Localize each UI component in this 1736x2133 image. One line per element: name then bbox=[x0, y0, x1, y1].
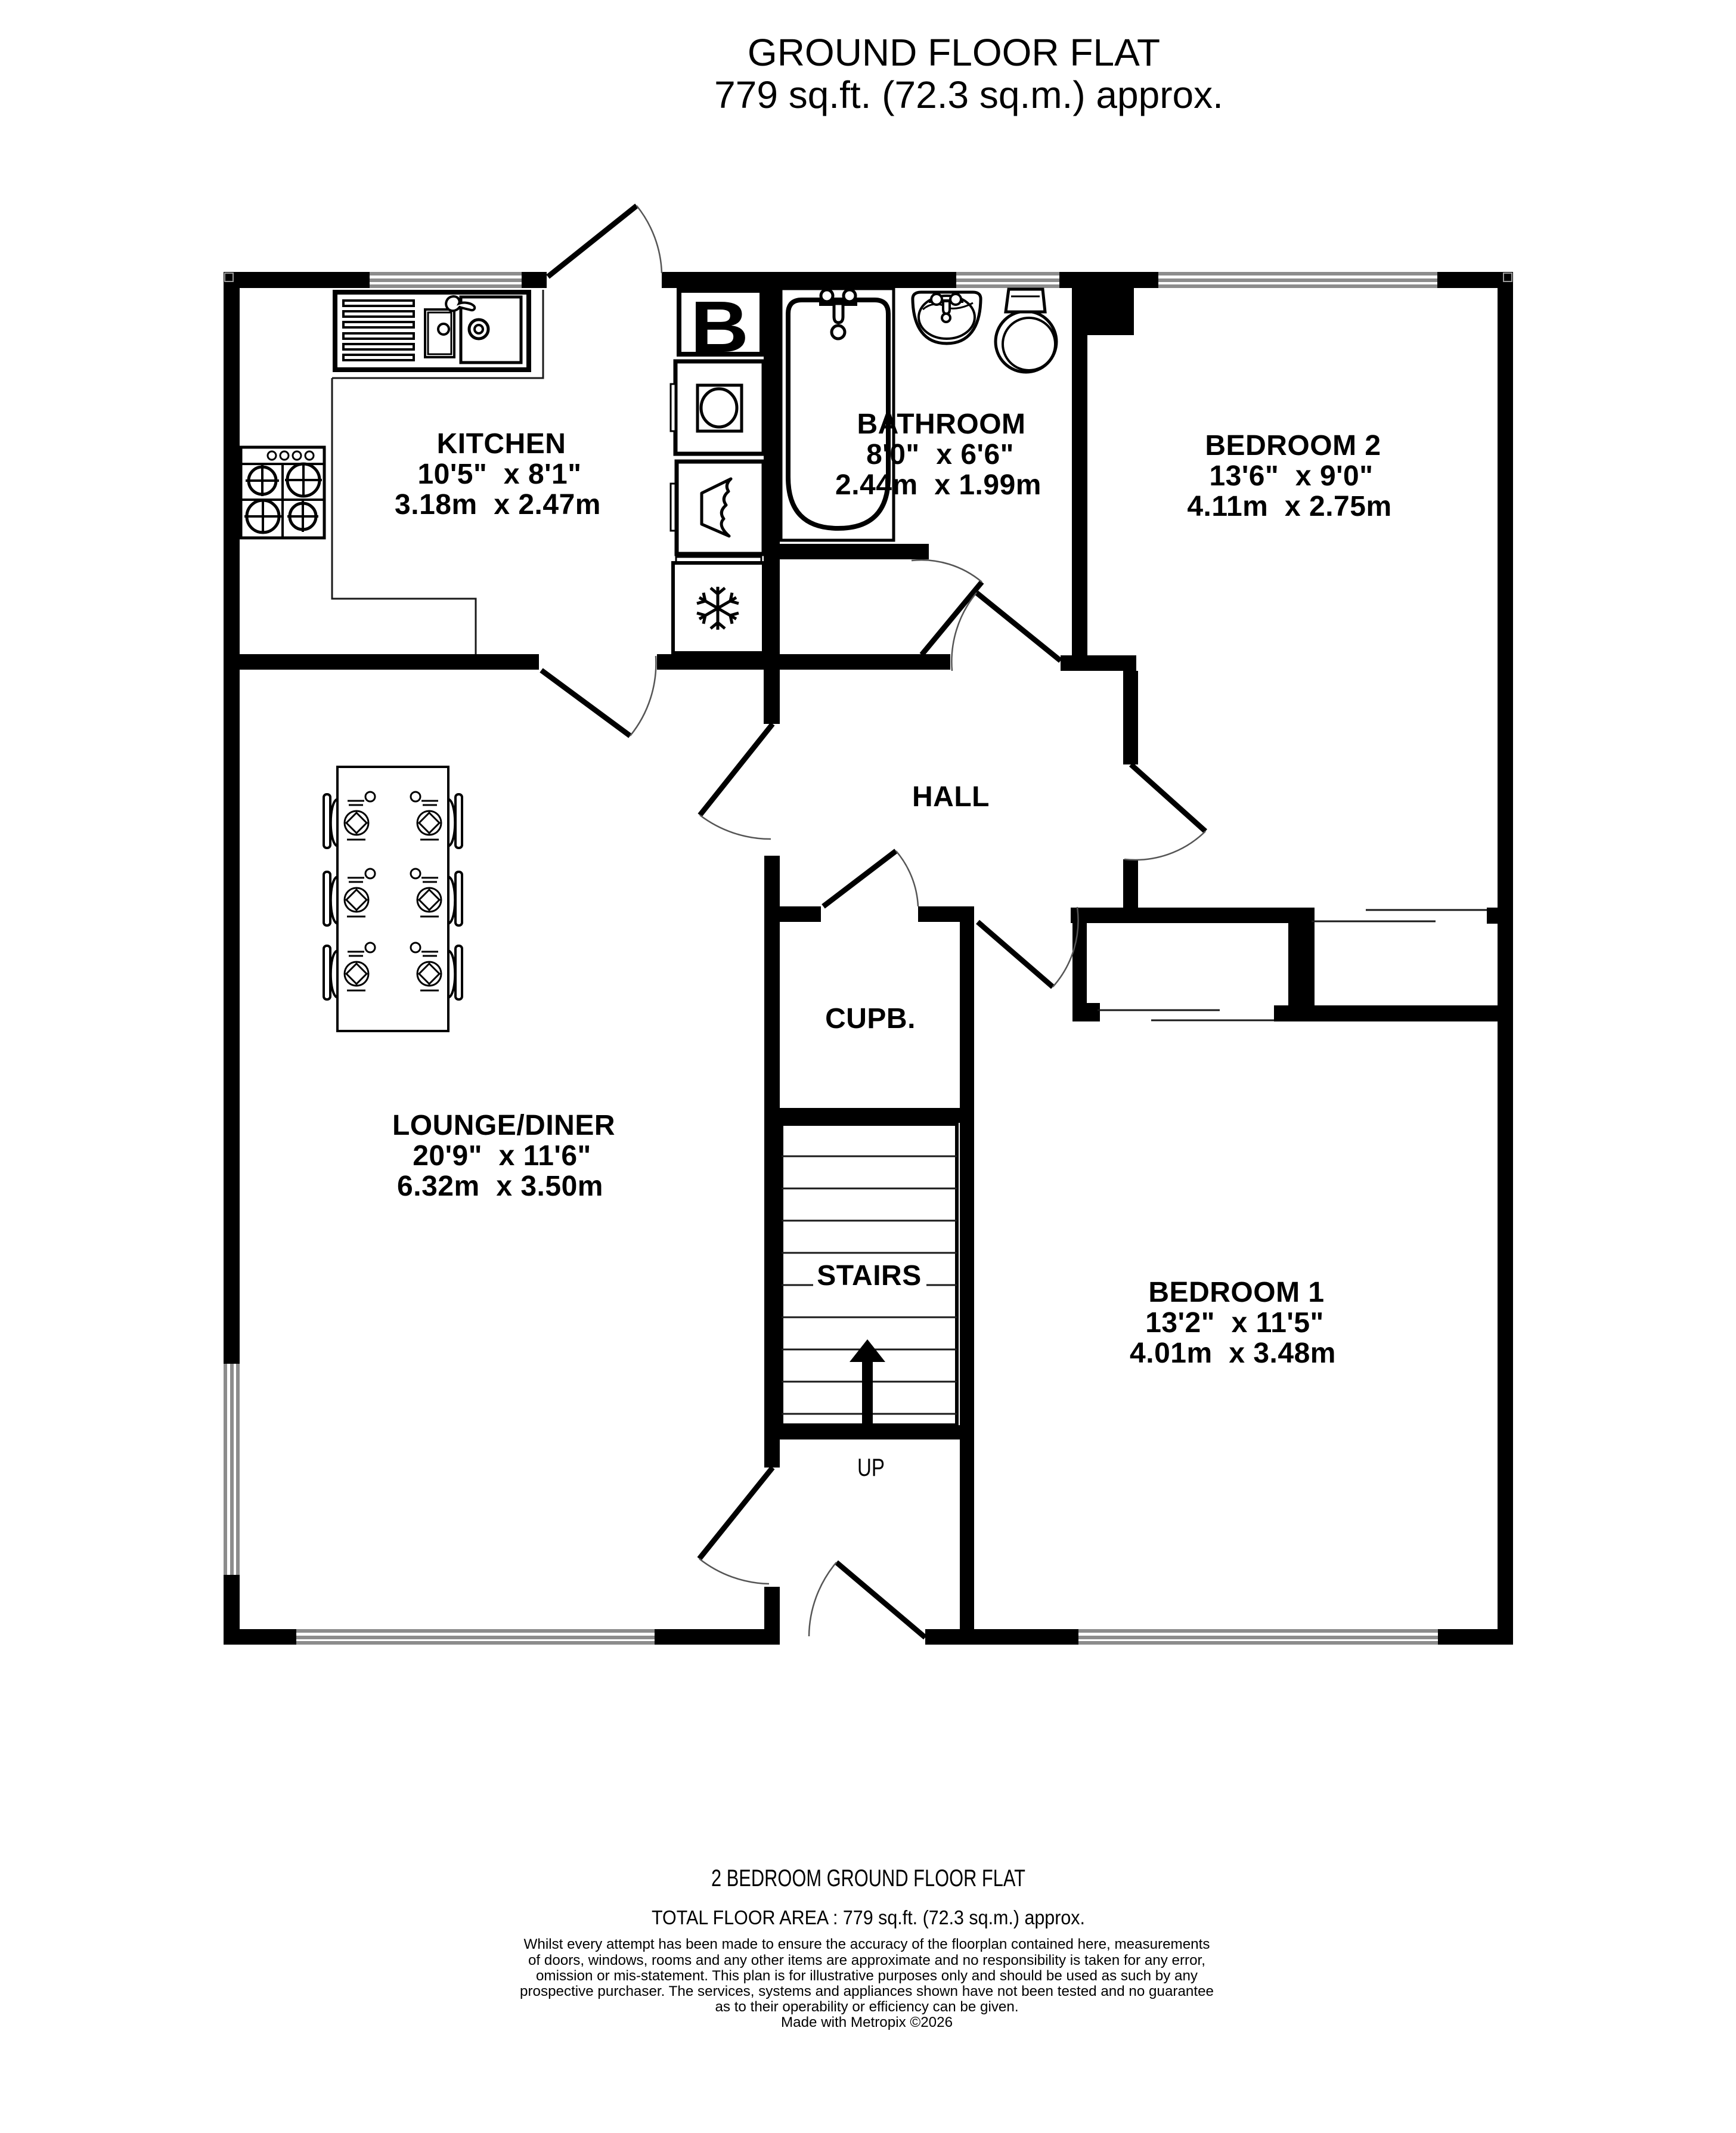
svg-text:Whilst every attempt has been: Whilst every attempt has been made to en… bbox=[524, 1936, 1210, 1952]
svg-text:as to their operability or eff: as to their operability or efficiency ca… bbox=[715, 1999, 1018, 2015]
svg-text:13'6" x 9'0": 13'6" x 9'0" bbox=[1209, 460, 1373, 492]
svg-text:20'9" x 11'6": 20'9" x 11'6" bbox=[413, 1140, 591, 1172]
svg-text:HALL: HALL bbox=[912, 781, 990, 813]
svg-text:BATHROOM: BATHROOM bbox=[857, 408, 1025, 440]
svg-text:STAIRS: STAIRS bbox=[817, 1260, 921, 1292]
svg-text:prospective purchaser. The ser: prospective purchaser. The services, sys… bbox=[520, 1983, 1214, 1999]
svg-text:4.11m x 2.75m: 4.11m x 2.75m bbox=[1187, 491, 1391, 522]
svg-text:UP: UP bbox=[857, 1453, 885, 1481]
svg-text:TOTAL FLOOR AREA : 779 sq.ft.: TOTAL FLOOR AREA : 779 sq.ft. (72.3 sq.m… bbox=[652, 1906, 1085, 1928]
svg-text:LOUNGE/DINER: LOUNGE/DINER bbox=[392, 1110, 615, 1141]
svg-text:GROUND FLOOR FLAT: GROUND FLOOR FLAT bbox=[748, 31, 1160, 74]
svg-text:CUPB.: CUPB. bbox=[825, 1003, 916, 1035]
svg-text:13'2" x 11'5": 13'2" x 11'5" bbox=[1145, 1307, 1324, 1339]
svg-text:Made with Metropix ©2026: Made with Metropix ©2026 bbox=[781, 2014, 953, 2030]
svg-text:2.44m x 1.99m: 2.44m x 1.99m bbox=[835, 469, 1041, 501]
svg-text:2 BEDROOM GROUND FLOOR FLAT: 2 BEDROOM GROUND FLOOR FLAT bbox=[711, 1865, 1025, 1891]
svg-text:10'5" x 8'1": 10'5" x 8'1" bbox=[417, 459, 581, 490]
svg-text:4.01m x 3.48m: 4.01m x 3.48m bbox=[1130, 1338, 1336, 1369]
svg-text:779 sq.ft. (72.3 sq.m.) approx: 779 sq.ft. (72.3 sq.m.) approx. bbox=[714, 73, 1223, 116]
svg-text:B: B bbox=[690, 286, 749, 367]
svg-text:3.18m x 2.47m: 3.18m x 2.47m bbox=[395, 489, 601, 521]
svg-text:8'0" x 6'6": 8'0" x 6'6" bbox=[866, 439, 1014, 470]
svg-text:omission or mis-statement. Thi: omission or mis-statement. This plan is … bbox=[536, 1968, 1198, 1984]
svg-text:BEDROOM 2: BEDROOM 2 bbox=[1205, 430, 1381, 462]
svg-text:6.32m x 3.50m: 6.32m x 3.50m bbox=[397, 1171, 603, 1202]
svg-text:of doors, windows, rooms and a: of doors, windows, rooms and any other i… bbox=[528, 1952, 1205, 1968]
svg-text:BEDROOM 1: BEDROOM 1 bbox=[1148, 1277, 1324, 1308]
svg-text:KITCHEN: KITCHEN bbox=[437, 428, 566, 460]
